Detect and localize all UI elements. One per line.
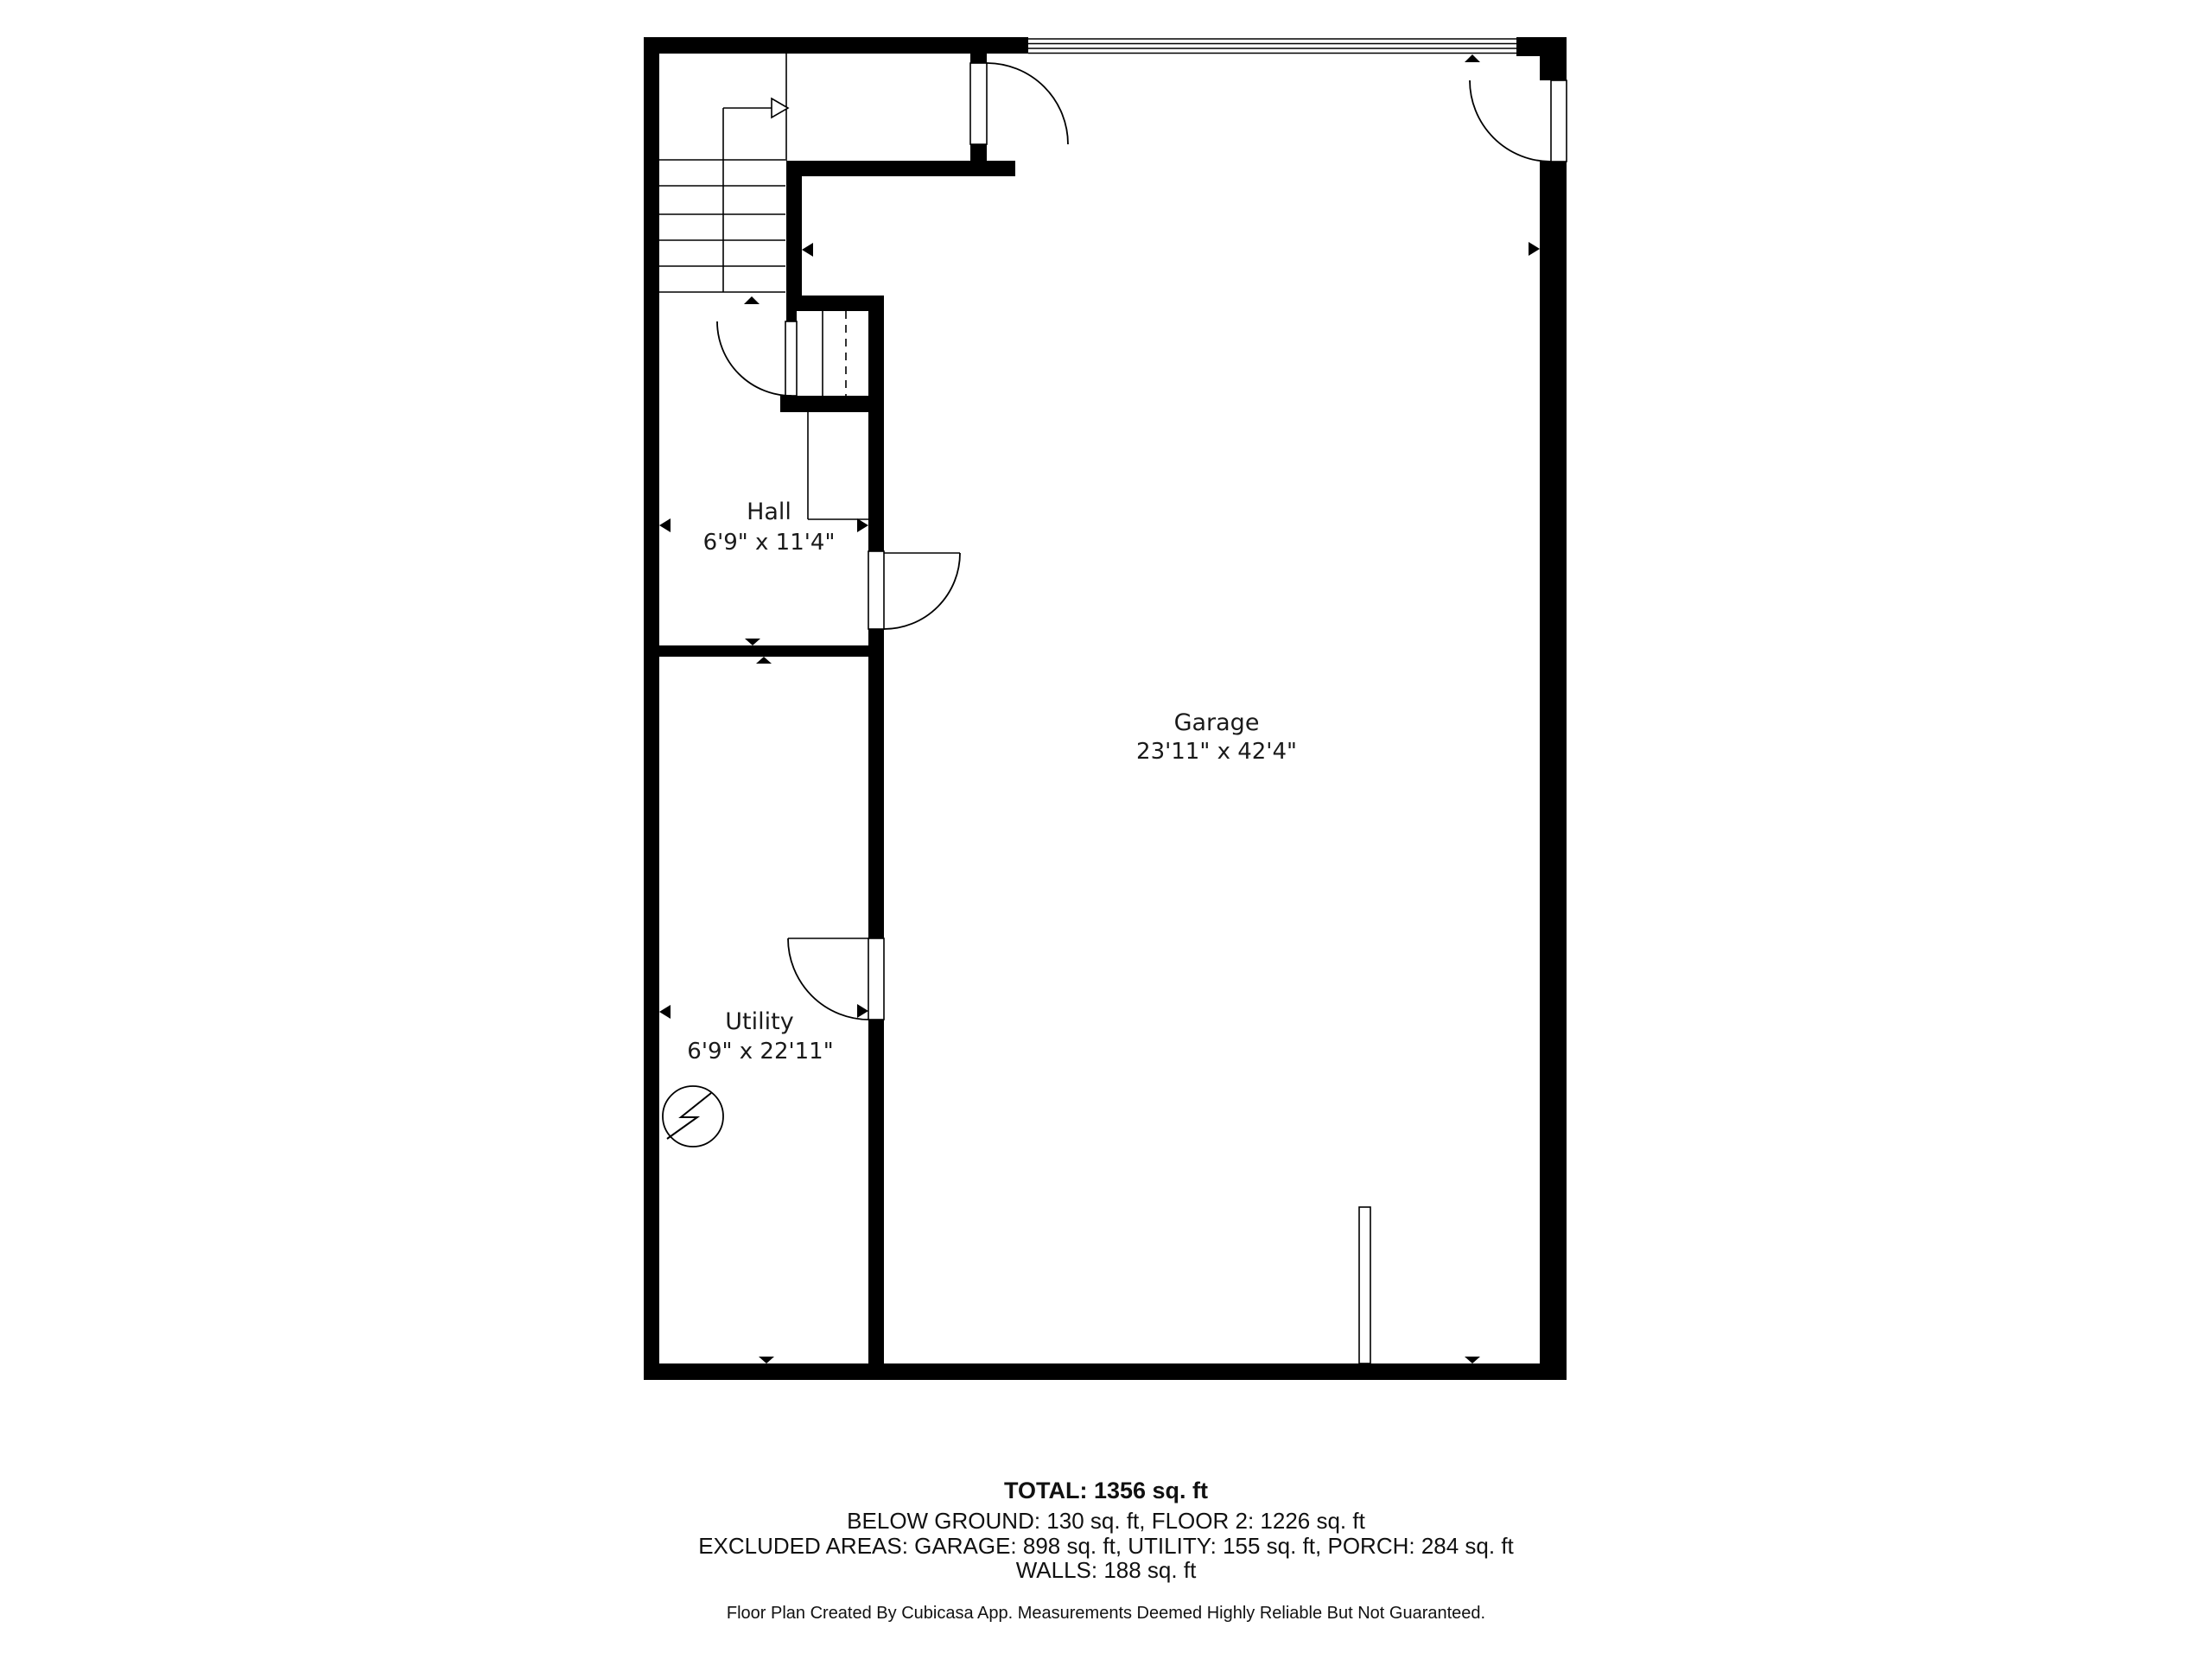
utility-garage-wall-lower [868,1020,884,1363]
closet-bottom-wall [780,396,884,412]
landing-garage-door-icon [970,63,1068,144]
closet-right-wall [868,296,884,412]
dim-arrow-left-utility [659,1005,671,1019]
hall-garage-wall-upper [868,412,884,551]
closet-door-icon [717,321,797,396]
top-wall-left [644,37,1028,54]
garage-wall-partition [1359,1207,1370,1363]
dim-arrow-left-garage [802,243,813,257]
bottom-wall [644,1363,1567,1380]
room-dims-utility: 6'9" x 22'11" [687,1039,833,1065]
dim-arrow-up-stairs [744,296,760,304]
dim-arrow-right-utility [857,1004,868,1018]
summary-excluded-areas: EXCLUDED AREAS: GARAGE: 898 sq. ft, UTIL… [0,1533,2212,1560]
hall-garage-door-icon [868,551,960,629]
staircase [659,54,868,519]
exterior-walls [644,37,1567,1380]
dim-arrow-down-garage [1465,1357,1480,1363]
utility-garage-wall-upper [868,629,884,938]
dim-arrow-right-hall [857,518,868,532]
left-wall [644,37,659,1380]
floor-plan-page: Hall 6'9" x 11'4" Garage 23'11" x 42'4" … [0,0,2212,1659]
summary-walls-area: WALLS: 188 sq. ft [0,1557,2212,1584]
doors [717,63,1567,1020]
room-label-utility: Utility [725,1008,793,1035]
dim-arrow-left-hall [659,518,671,532]
landing-wall-bottom-stub [970,144,987,161]
stair-up-arrow-icon [723,99,788,292]
landing-wall-top-stub [970,54,987,63]
disclaimer-text: Floor Plan Created By Cubicasa App. Meas… [0,1604,2212,1624]
dim-arrow-right-garage [1529,242,1540,256]
garage-side-door-icon [1470,80,1567,162]
room-label-garage: Garage [1174,709,1260,736]
electrical-symbol-icon [663,1086,723,1147]
interior-walls [659,54,1015,1363]
dim-arrow-up-utility [756,657,772,664]
right-wall [1540,37,1567,1380]
summary-floor-areas: BELOW GROUND: 130 sq. ft, FLOOR 2: 1226 … [0,1508,2212,1535]
floor-plan-drawing: Hall 6'9" x 11'4" Garage 23'11" x 42'4" … [0,0,2212,1659]
room-dims-garage: 23'11" x 42'4" [1136,739,1297,765]
dim-arrow-down-utility [759,1357,774,1363]
summary-total: TOTAL: 1356 sq. ft [0,1478,2212,1504]
closet-left-stub [786,311,797,321]
utility-garage-door-icon [788,938,884,1020]
stair-garage-wall [786,176,802,296]
landing-bottom-wall [786,161,1015,176]
dim-arrow-down-hall [745,639,760,645]
dim-arrow-up-garage-top [1465,54,1480,62]
garage-door-icon [1028,39,1516,54]
room-dims-hall: 6'9" x 11'4" [703,530,836,556]
under-stair-closet [808,311,868,519]
hall-utility-wall [659,645,870,657]
room-label-hall: Hall [747,499,791,525]
